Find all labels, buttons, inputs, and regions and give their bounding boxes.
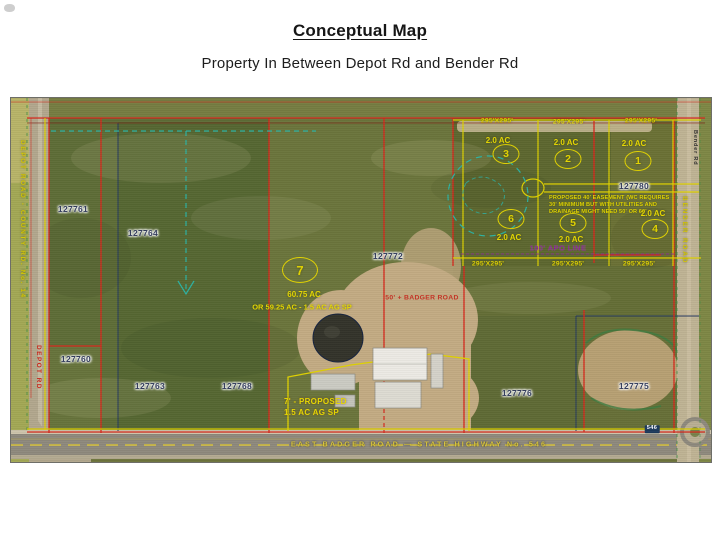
depot-rd-red-label: DEPOT RD — [35, 345, 42, 390]
parcel-number-127764: 127764 — [128, 229, 158, 238]
depot-road-label: DEPOT ROAD - COUNTY RD. No. 14 — [19, 140, 26, 299]
bender-road-yellow-label: BENDER ROAD — [681, 196, 688, 264]
proposed-ag-sp-line1: 7' - PROPOSED — [284, 398, 347, 406]
dimension-295x295: 295'X295' — [472, 262, 504, 269]
parcel-number-127760: 127760 — [61, 355, 91, 364]
lot-5-circle: 5 — [560, 213, 587, 233]
page-subtitle: Property In Between Depot Rd and Bender … — [0, 55, 720, 72]
east-badger-road-label: EAST BADGER ROAD — STATE HIGHWAY No. 546 — [291, 440, 547, 447]
dimension-295x295: 295'X295' — [481, 119, 513, 126]
easement-note-line3: DRAINAGE MIGHT NEED 50' OR 60' — [549, 210, 647, 216]
parcel-number-127780: 127780 — [619, 182, 649, 191]
lot-2-area: 2.0 AC — [554, 139, 579, 147]
scanned-page: { "doc": { "title": "Conceptual Map", "s… — [0, 0, 720, 556]
apo-line-label: 100' APO LINE — [530, 244, 587, 252]
lot-7-circle: 7 — [282, 257, 318, 283]
easement-note-line2: 30' MINIMUM BUT WITH UTILITIES AND — [549, 203, 657, 209]
lot-7-area-alt: OR 59.25 AC - 1.5 AC AG SP — [252, 303, 352, 311]
parcel-number-127775: 127775 — [619, 382, 649, 391]
badger-road-red-note: 50' + BADGER ROAD — [385, 296, 458, 303]
dimension-295x295: 295'X295' — [552, 262, 584, 269]
lot-1-area: 2.0 AC — [622, 140, 647, 148]
highway-546-sign: 546 — [645, 425, 660, 433]
dimension-295x295: 295'X295' — [623, 262, 655, 269]
lot-3-area: 2.0 AC — [486, 137, 511, 145]
parcel-number-127761: 127761 — [58, 205, 88, 214]
parcel-number-127763: 127763 — [135, 382, 165, 391]
parcel-number-127772: 127772 — [373, 252, 403, 261]
dimension-295x295: 295'X295' — [553, 120, 585, 127]
lot-3-circle: 3 — [493, 144, 520, 164]
lot-6-area: 2.0 AC — [497, 234, 522, 242]
conceptual-map-image: 127761 127764 127760 127763 127768 12777… — [10, 97, 712, 463]
lot-2-circle: 2 — [555, 149, 582, 169]
pond — [313, 314, 363, 362]
page-title: Conceptual Map — [0, 21, 720, 41]
parcel-number-127768: 127768 — [222, 382, 252, 391]
bender-rd-label: Bender Rd — [691, 130, 697, 165]
lot-1-circle: 1 — [625, 151, 652, 171]
lot-4-circle: 4 — [642, 219, 669, 239]
aerial-map-graphic — [11, 98, 711, 462]
lot-7-area: 60.75 AC — [287, 291, 321, 299]
lot-6-circle: 6 — [498, 209, 525, 229]
dimension-295x295: 295'X295' — [625, 119, 657, 126]
proposed-ag-sp-line2: 1.5 AC AG SP — [284, 409, 339, 417]
easement-note-line1: PROPOSED 40' EASEMENT (WC REQUIRES — [549, 196, 669, 202]
scan-artifact — [4, 4, 15, 12]
parcel-number-127776: 127776 — [502, 389, 532, 398]
